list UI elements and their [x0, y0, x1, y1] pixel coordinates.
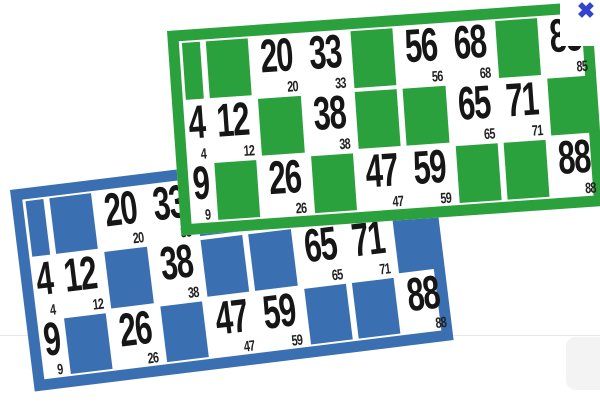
cell-number-big: 26 — [268, 156, 303, 199]
cell-number-small: 88 — [584, 181, 596, 197]
ticket-cell-number: 6565 — [293, 221, 348, 287]
cell-number-big: 38 — [312, 92, 347, 135]
cell-number-big: 59 — [261, 289, 298, 333]
ticket-cell-number: 6565 — [448, 80, 500, 144]
ticket-cell-blank — [61, 311, 116, 377]
cell-number-big: 56 — [404, 24, 439, 67]
ticket-cell-blank — [197, 233, 252, 299]
filled-block — [503, 140, 549, 200]
ticket-cell-number: 2020 — [251, 33, 303, 97]
ticket-cell-blank — [348, 275, 403, 341]
cell-number-small: 9 — [204, 207, 210, 222]
filled-block — [455, 143, 501, 203]
cell-number-small: 71 — [379, 261, 391, 277]
close-icon: ✖ — [577, 0, 595, 22]
cell-number-small: 26 — [295, 201, 307, 217]
cell-number-big: 65 — [301, 223, 338, 267]
filled-block — [206, 38, 252, 98]
ticket-cell-blank — [352, 87, 404, 151]
ticket-cell-number: 5959 — [253, 287, 308, 353]
ticket-cell-blank — [400, 84, 452, 148]
cell-number-small: 26 — [147, 350, 159, 366]
ticket-cell-number: 4747 — [356, 148, 408, 212]
ticket-cell-number: 7171 — [496, 77, 548, 141]
ticket-cell-number: 7171 — [341, 215, 396, 281]
cell-number-small: 59 — [440, 191, 452, 207]
ticket-cell-number: 3333 — [299, 29, 351, 93]
filled-block — [64, 313, 113, 374]
ticket-cell-blank — [46, 191, 101, 257]
ticket-cell-number: 3838 — [303, 90, 355, 154]
filled-block — [182, 42, 204, 100]
filled-block — [258, 96, 304, 156]
cell-number-small: 38 — [187, 284, 199, 300]
cell-number-big: 26 — [117, 307, 154, 351]
cell-number-small: 20 — [132, 230, 144, 246]
cell-number-big: 9 — [191, 163, 210, 204]
cell-number-big: 33 — [307, 31, 342, 74]
ticket-cell-blank — [101, 245, 156, 311]
cell-number-big: 71 — [349, 217, 386, 261]
cell-number-small: 85 — [576, 59, 588, 75]
cell-number-big: 88 — [405, 271, 442, 315]
cell-number-big: 88 — [557, 136, 592, 179]
cell-number-big: 47 — [364, 149, 399, 192]
ticket-cell-blank — [347, 26, 399, 90]
ticket-cell-number: 2626 — [259, 154, 311, 218]
filled-block — [160, 301, 209, 362]
side-panel — [566, 337, 600, 390]
ticket-cell-blank — [157, 299, 212, 365]
ticket-cell-number: 1212 — [54, 251, 109, 317]
filled-block — [311, 153, 357, 213]
cell-number-big: 4 — [187, 102, 206, 143]
bingo-card-green[interactable]: 2020333356566868858544121238386565717199… — [167, 1, 600, 235]
ticket-cell-blank — [452, 141, 504, 205]
ticket-cell-number: 3838 — [149, 239, 204, 305]
cell-number-big: 68 — [452, 21, 487, 64]
filled-block — [495, 18, 541, 78]
cell-number-small: 59 — [291, 333, 303, 349]
cell-number-small: 9 — [56, 362, 63, 378]
cell-number-big: 65 — [456, 82, 491, 125]
ticket-cell-number: 1212 — [207, 97, 259, 161]
close-button[interactable]: ✖ — [572, 0, 600, 25]
cell-number-small: 20 — [287, 79, 299, 95]
cell-number-small: 88 — [434, 315, 446, 331]
cell-number-big: 20 — [259, 34, 294, 77]
filled-block — [304, 283, 353, 344]
cell-number-big: 38 — [158, 241, 195, 285]
ticket-cell-blank — [255, 94, 307, 158]
cell-number-small: 38 — [339, 137, 351, 153]
cell-number-small: 65 — [484, 126, 496, 142]
stage: 2020333356566868858544121238386565717199… — [0, 0, 600, 404]
ticket-cell-blank — [301, 281, 356, 347]
cell-number-small: 56 — [431, 69, 443, 85]
cell-number-big: 12 — [62, 253, 99, 297]
ticket-cell-blank — [492, 16, 544, 80]
ticket-cell-blank — [544, 73, 596, 137]
cell-number-small: 47 — [392, 194, 404, 210]
ticket-cell-blank — [308, 151, 360, 215]
cell-number-small: 65 — [331, 267, 343, 283]
cell-number-big: 59 — [412, 146, 447, 189]
ticket-cell-number: 2020 — [94, 185, 149, 251]
ticket-cell-number: 8888 — [396, 269, 451, 335]
cell-number-small: 12 — [243, 143, 255, 159]
filled-block — [214, 160, 260, 220]
ticket-cell-blank — [500, 138, 552, 202]
ticket-cell-number: 4747 — [205, 293, 260, 359]
filled-block — [547, 76, 593, 136]
filled-block — [355, 89, 401, 149]
cell-number-big: 20 — [102, 187, 139, 231]
cell-number-small: 47 — [243, 338, 255, 354]
ticket-cell-blank — [203, 36, 255, 100]
ticket-cell-number: 5656 — [395, 23, 447, 87]
cell-number-big: 4 — [34, 258, 55, 300]
ticket-cell-number: 6868 — [444, 19, 496, 83]
ticket-cell-number: 2626 — [109, 305, 164, 371]
cell-number-big: 9 — [41, 318, 62, 360]
ticket-grid-green: 2020333356566868858544121238386565717199… — [179, 13, 594, 224]
ticket-cell-number: 5959 — [404, 144, 456, 208]
cell-number-small: 12 — [92, 296, 104, 312]
filled-block — [403, 86, 449, 146]
filled-block — [352, 278, 401, 339]
ticket-cell-number: 8888 — [548, 134, 600, 198]
cell-number-big: 71 — [504, 78, 539, 121]
filled-block — [350, 28, 396, 88]
ticket-cell-blank — [211, 158, 263, 222]
ticket-cell-blank — [245, 227, 300, 293]
cell-number-big: 47 — [213, 295, 250, 339]
cell-number-big: 12 — [215, 99, 250, 142]
cell-number-small: 71 — [532, 123, 544, 139]
